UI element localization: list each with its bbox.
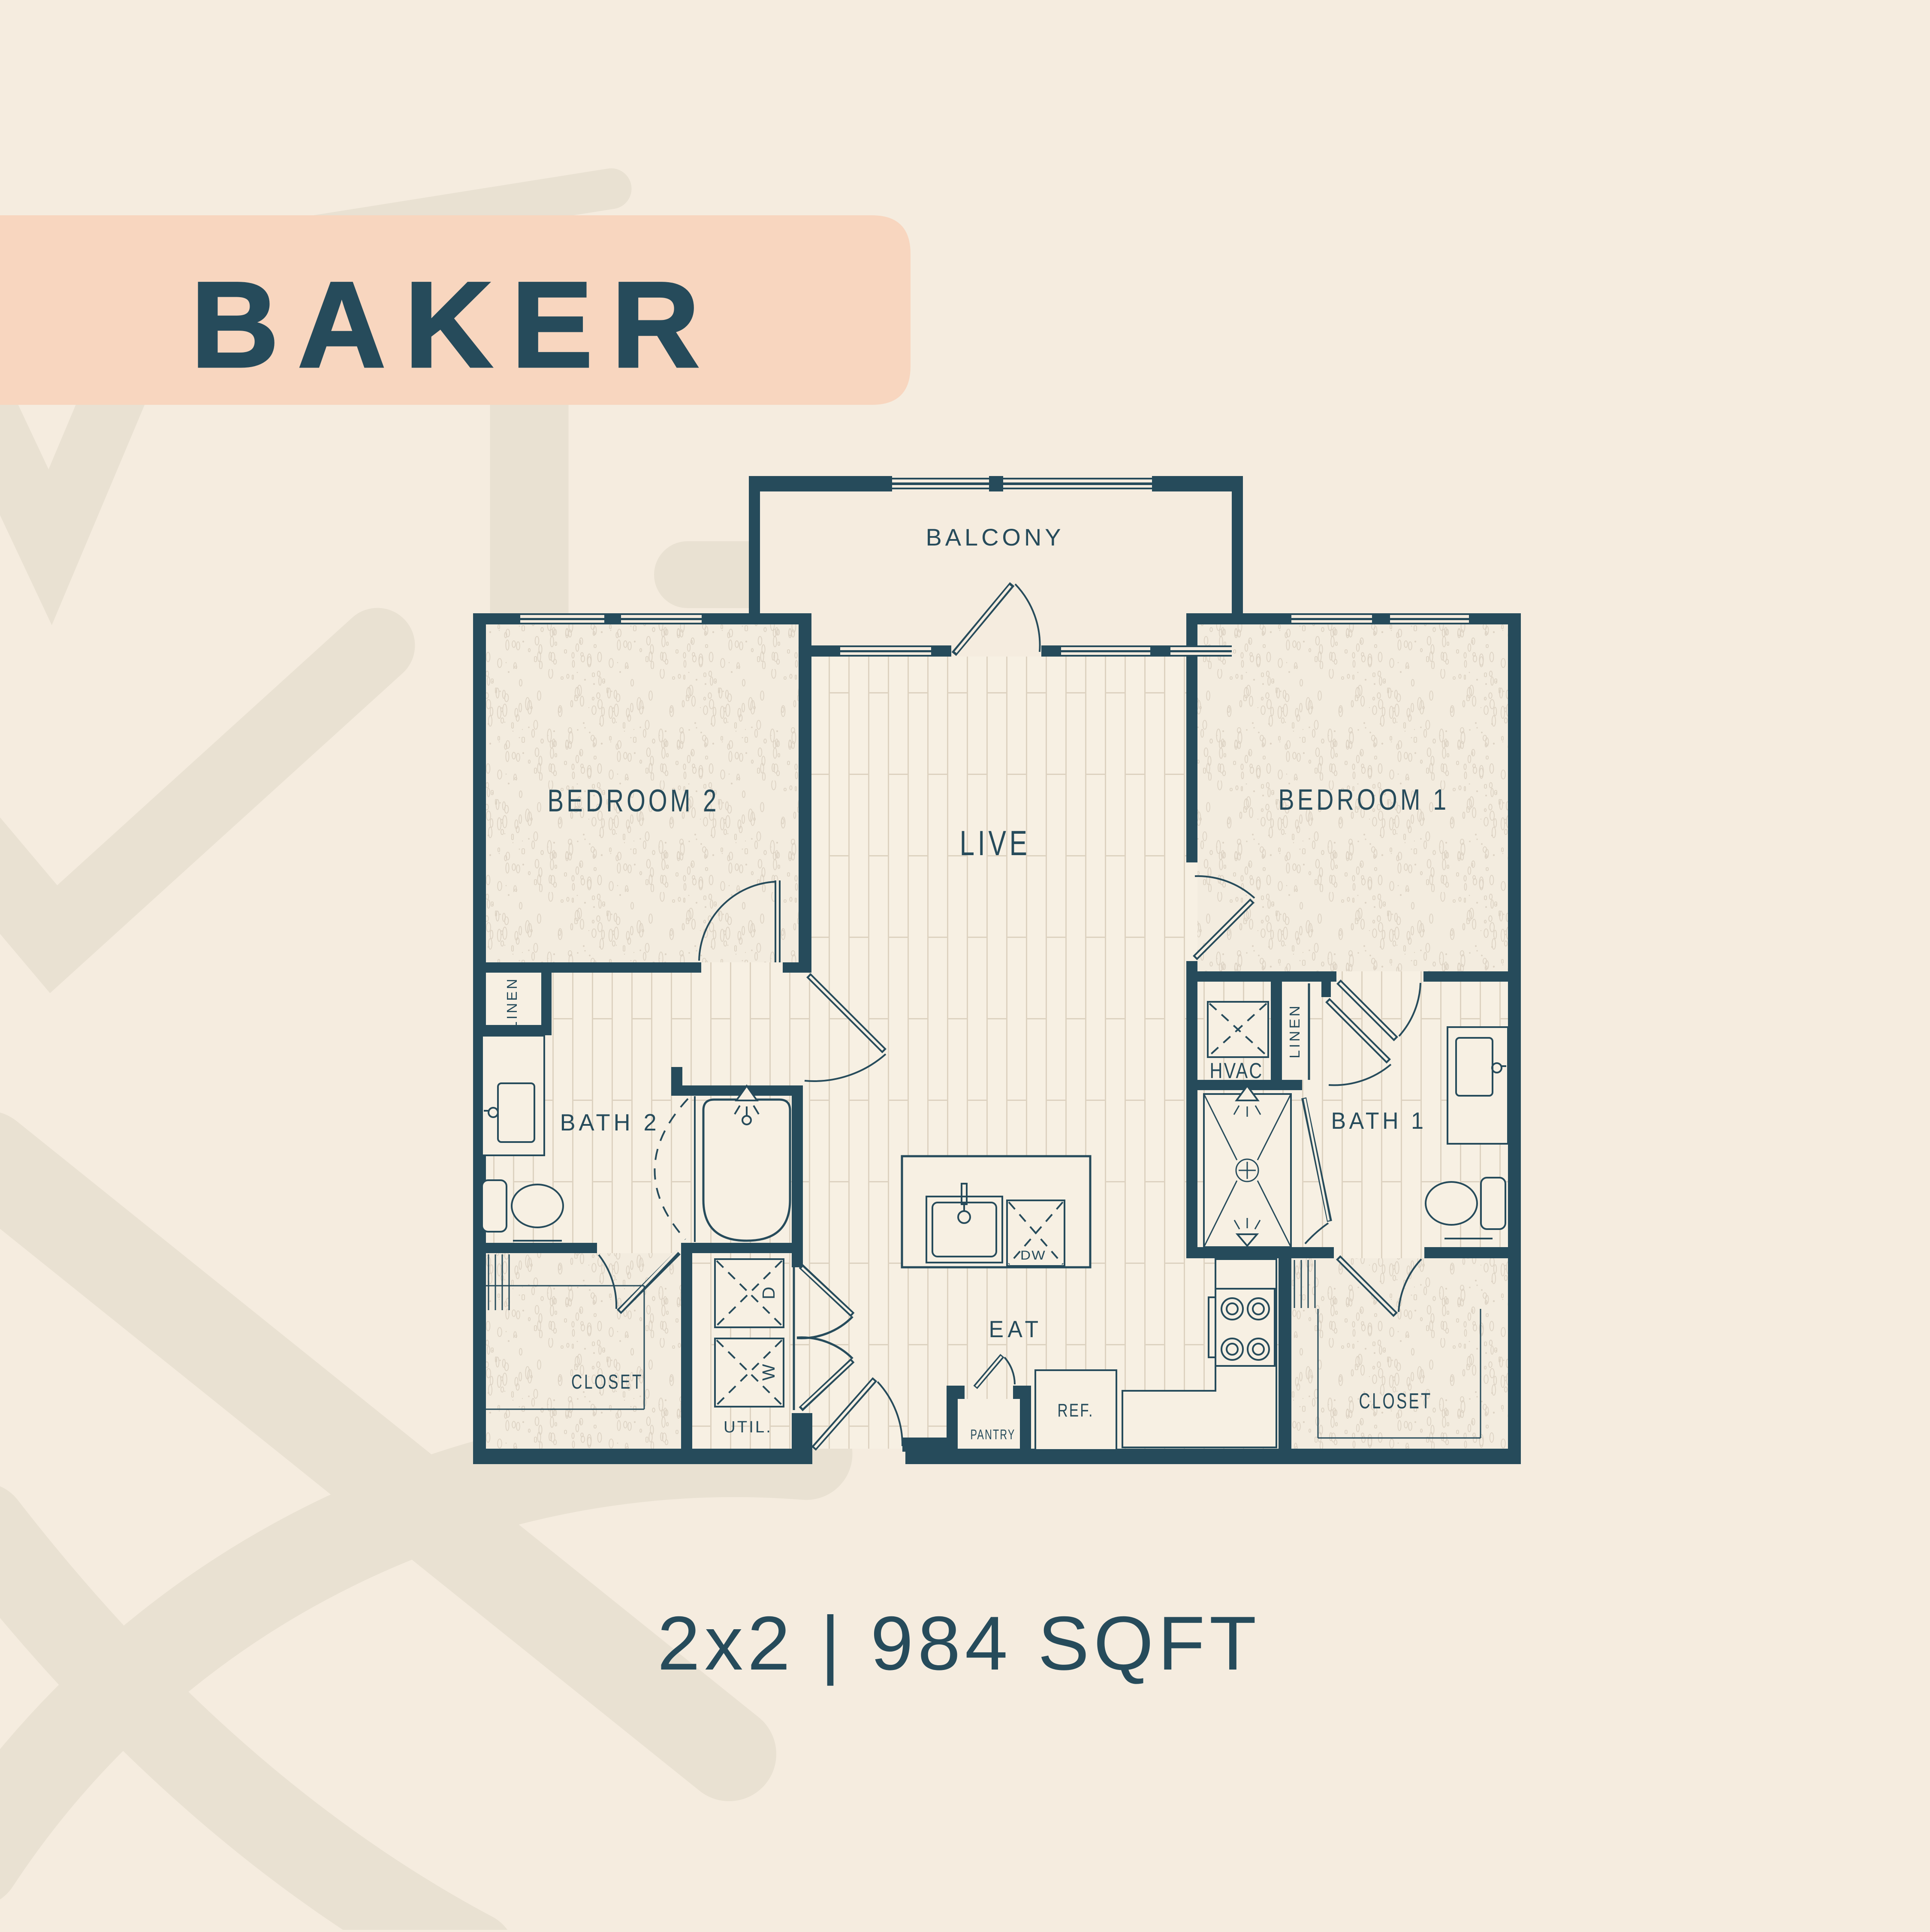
svg-text:CLOSET: CLOSET: [571, 1370, 643, 1393]
svg-text:DW: DW: [1020, 1248, 1046, 1263]
svg-text:2x2 | 984 SQFT: 2x2 | 984 SQFT: [657, 1600, 1261, 1686]
svg-text:EAT: EAT: [989, 1316, 1043, 1342]
svg-text:D: D: [759, 1287, 778, 1299]
svg-text:W: W: [759, 1364, 778, 1380]
svg-text:HVAC: HVAC: [1210, 1058, 1264, 1083]
svg-text:BAKER: BAKER: [191, 257, 718, 393]
svg-text:LINEN: LINEN: [1287, 1004, 1303, 1058]
svg-text:BATH 1: BATH 1: [1331, 1107, 1427, 1134]
svg-text:LIVE: LIVE: [960, 824, 1031, 863]
svg-text:PANTRY: PANTRY: [971, 1427, 1016, 1442]
svg-text:BALCONY: BALCONY: [926, 524, 1065, 551]
svg-text:UTIL.: UTIL.: [724, 1418, 772, 1436]
svg-text:LINEN: LINEN: [504, 977, 520, 1030]
svg-text:BEDROOM 2: BEDROOM 2: [548, 784, 720, 818]
svg-text:BATH 2: BATH 2: [560, 1109, 660, 1136]
svg-text:REF.: REF.: [1058, 1400, 1094, 1421]
svg-text:CLOSET: CLOSET: [1359, 1389, 1432, 1413]
svg-text:BEDROOM 1: BEDROOM 1: [1279, 783, 1450, 816]
